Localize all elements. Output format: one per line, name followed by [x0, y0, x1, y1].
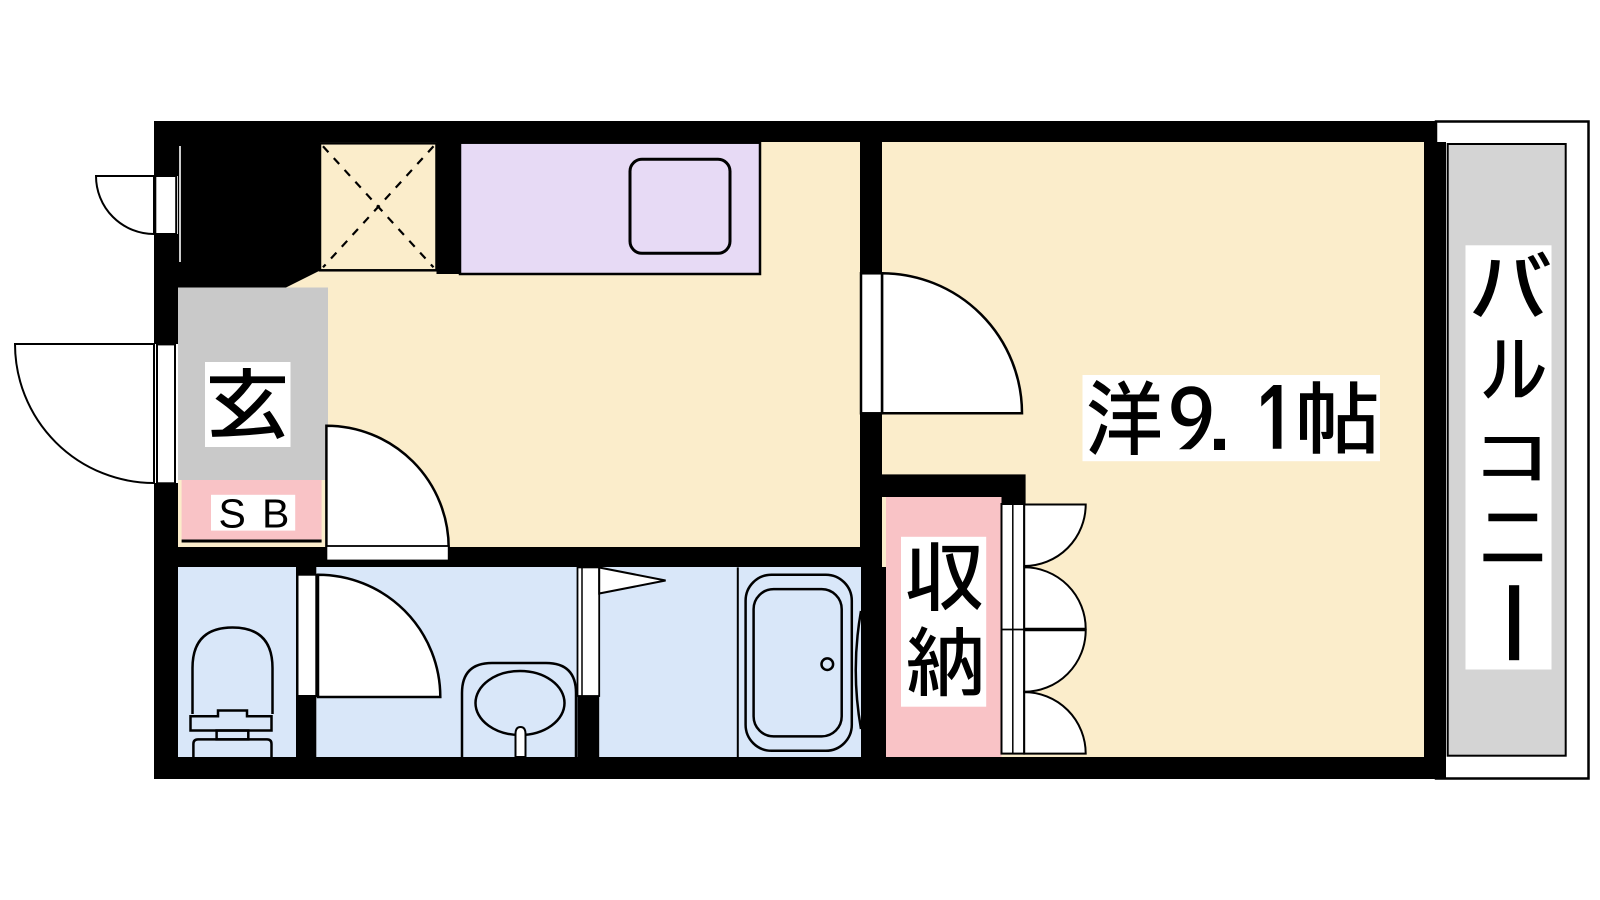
svg-text:S B: S B	[219, 491, 292, 537]
